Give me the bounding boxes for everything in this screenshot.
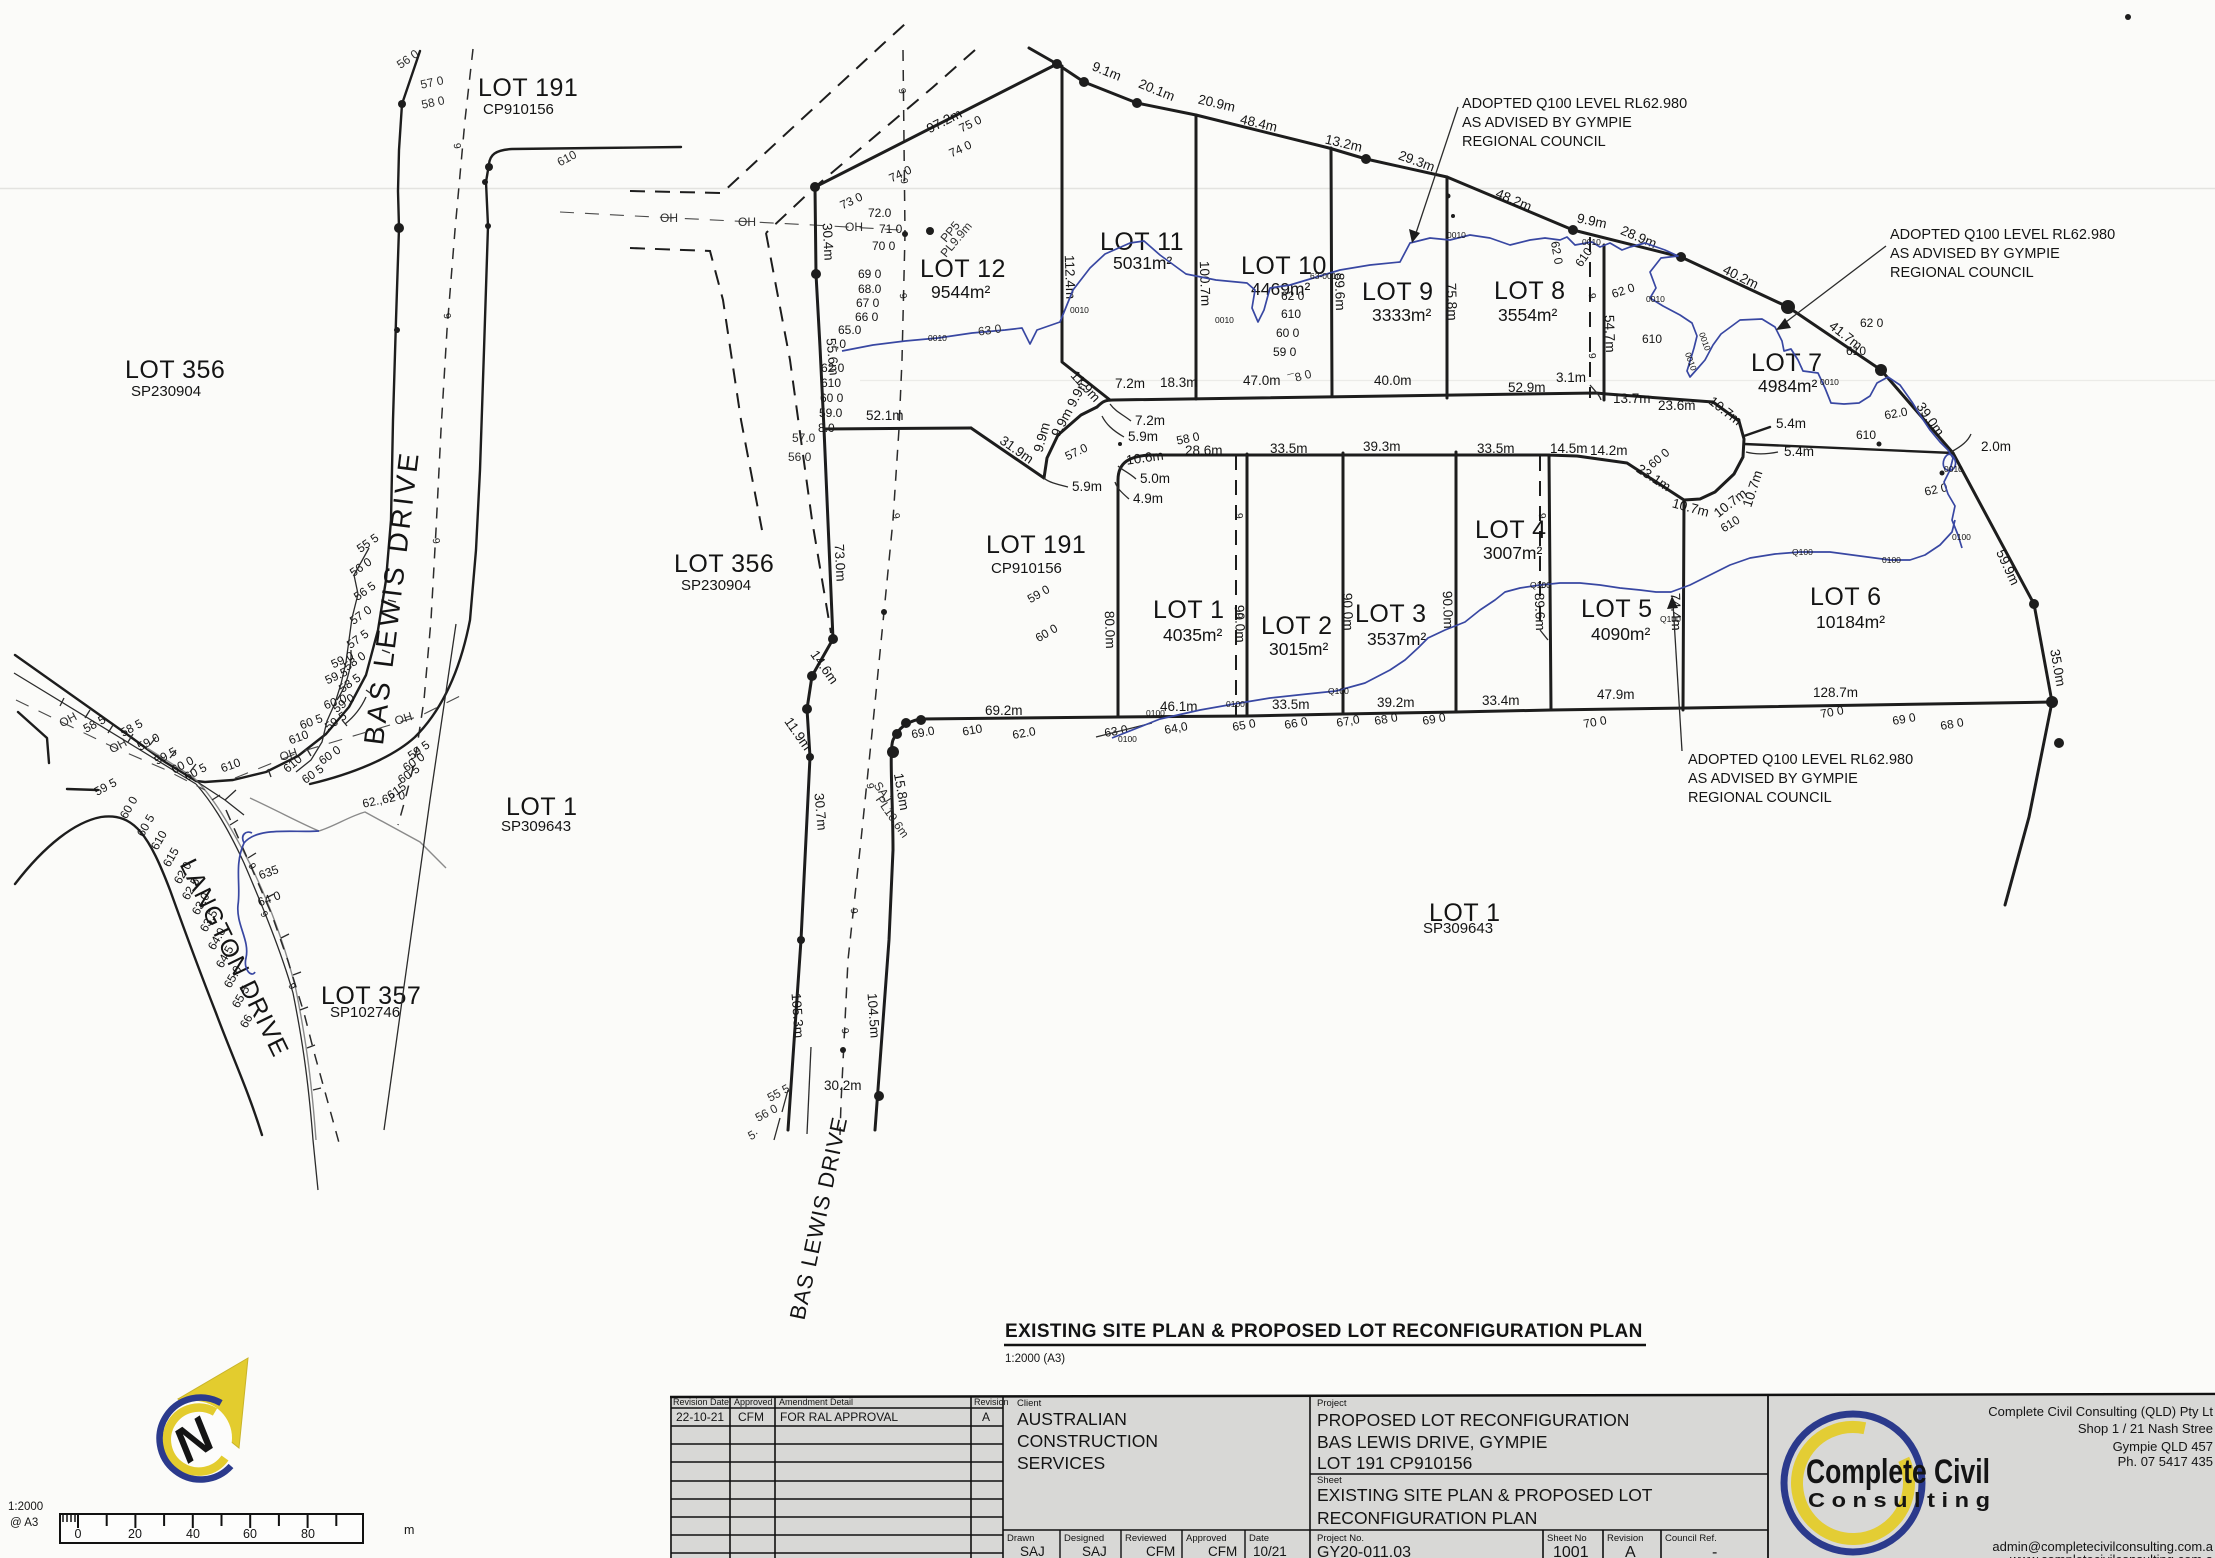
svg-text:52.1m: 52.1m <box>866 408 904 423</box>
svg-text:71 0: 71 0 <box>879 222 903 236</box>
svg-text:0010: 0010 <box>1447 230 1466 240</box>
svg-text:90 0m: 90 0m <box>1340 593 1356 631</box>
svg-text:CONSTRUCTION: CONSTRUCTION <box>1017 1431 1158 1451</box>
svg-text:20: 20 <box>128 1527 142 1541</box>
svg-text:10184m²: 10184m² <box>1816 612 1885 632</box>
svg-text:CP910156: CP910156 <box>483 101 554 118</box>
svg-text:m: m <box>404 1523 414 1537</box>
svg-text:SP309643: SP309643 <box>1423 920 1493 937</box>
svg-text:5031m²: 5031m² <box>1113 253 1173 273</box>
svg-text:Q100: Q100 <box>1792 547 1813 557</box>
svg-text:LOT 6: LOT 6 <box>1810 583 1882 611</box>
svg-text:33.5m: 33.5m <box>1272 697 1310 712</box>
svg-text:39.3m: 39.3m <box>1363 439 1401 454</box>
svg-text:Project No.: Project No. <box>1317 1533 1364 1544</box>
svg-text:22-10-21: 22-10-21 <box>676 1410 724 1424</box>
svg-text:Drawn: Drawn <box>1007 1533 1034 1544</box>
svg-text:AS ADVISED BY GYMPIE: AS ADVISED BY GYMPIE <box>1462 115 1632 131</box>
svg-text:70 0: 70 0 <box>872 239 896 253</box>
svg-text:-: - <box>1712 1544 1717 1558</box>
svg-text:67 0: 67 0 <box>856 296 880 310</box>
svg-text:89.6m: 89.6m <box>1532 593 1548 631</box>
svg-text:Revision Date: Revision Date <box>673 1397 729 1407</box>
svg-text:LOT 5: LOT 5 <box>1581 595 1653 623</box>
svg-text:62 0: 62 0 <box>1281 289 1305 303</box>
svg-text:28.6m: 28.6m <box>1185 443 1223 458</box>
svg-text:56 0: 56 0 <box>788 450 812 464</box>
svg-text:LOT 9: LOT 9 <box>1362 278 1434 306</box>
svg-text:Designed: Designed <box>1064 1533 1104 1544</box>
svg-text:60 0: 60 0 <box>1276 326 1300 340</box>
svg-text:4035m²: 4035m² <box>1163 625 1223 645</box>
svg-text:CP910156: CP910156 <box>991 560 1062 577</box>
svg-text:LOT 8: LOT 8 <box>1494 277 1566 305</box>
svg-text:104.5m: 104.5m <box>865 993 883 1039</box>
svg-text:610: 610 <box>1281 307 1301 321</box>
svg-text:80: 80 <box>301 1527 315 1541</box>
svg-text:0100: 0100 <box>1882 555 1901 565</box>
svg-text:EXISTING SITE PLAN & PROPOSED: EXISTING SITE PLAN & PROPOSED LOT RECONF… <box>1005 1321 1643 1342</box>
svg-text:3007m²: 3007m² <box>1483 543 1543 563</box>
svg-text:LOT 191 CP910156: LOT 191 CP910156 <box>1317 1453 1472 1473</box>
svg-text:3.1m: 3.1m <box>1556 370 1586 385</box>
svg-text:Revision: Revision <box>1607 1533 1643 1544</box>
svg-text:A: A <box>982 1410 990 1424</box>
svg-text:Council Ref.: Council Ref. <box>1665 1533 1717 1544</box>
svg-text:BAS LEWIS DRIVE, GYMPIE: BAS LEWIS DRIVE, GYMPIE <box>1317 1432 1547 1452</box>
svg-text:4984m²: 4984m² <box>1758 376 1818 396</box>
svg-text:128.7m: 128.7m <box>1813 685 1858 700</box>
svg-text:0100: 0100 <box>1952 532 1971 542</box>
svg-text:18.3m: 18.3m <box>1160 375 1198 390</box>
svg-text:40.0m: 40.0m <box>1374 373 1412 388</box>
svg-text:33.5m: 33.5m <box>1270 441 1308 456</box>
svg-text:610: 610 <box>821 376 841 390</box>
svg-text:14.2m: 14.2m <box>1590 443 1628 458</box>
svg-text:Gympie QLD 457: Gympie QLD 457 <box>2113 1439 2213 1454</box>
svg-text:0010: 0010 <box>1070 305 1089 315</box>
svg-text:SP102746: SP102746 <box>330 1004 400 1021</box>
svg-text:65.0: 65.0 <box>838 323 862 337</box>
svg-text:68.0: 68.0 <box>858 282 882 296</box>
svg-text:2.0m: 2.0m <box>1981 439 2011 454</box>
svg-text:EXISTING SITE PLAN & PROPOSED: EXISTING SITE PLAN & PROPOSED LOT <box>1317 1485 1653 1505</box>
svg-text:0010: 0010 <box>1582 237 1601 247</box>
svg-text:Q100: Q100 <box>1530 580 1551 590</box>
svg-text:Complete Civil: Complete Civil <box>1806 1453 1990 1491</box>
svg-text:Approved: Approved <box>1186 1533 1227 1544</box>
svg-text:52.9m: 52.9m <box>1508 380 1546 395</box>
svg-text:62 0: 62 0 <box>1860 316 1884 330</box>
svg-text:13.7m: 13.7m <box>1613 391 1651 406</box>
svg-text:CFM: CFM <box>738 1410 764 1424</box>
svg-text:CFM: CFM <box>1208 1544 1237 1558</box>
svg-text:30.2m: 30.2m <box>824 1078 862 1093</box>
svg-text:Client: Client <box>1017 1398 1042 1409</box>
svg-text:SP309643: SP309643 <box>501 818 571 835</box>
svg-text:73.0m: 73.0m <box>832 544 849 582</box>
svg-text:69 0: 69 0 <box>858 267 882 281</box>
svg-text:Complete Civil Consulting (QLD: Complete Civil Consulting (QLD) Pty Lt <box>1988 1404 2213 1419</box>
svg-text:LOT 2: LOT 2 <box>1261 612 1333 640</box>
svg-text:www.completecivilconsulting.co: www.completecivilconsulting.com.a <box>2009 1552 2214 1558</box>
svg-text:74.4m: 74.4m <box>1668 593 1684 631</box>
svg-text:REGIONAL COUNCIL: REGIONAL COUNCIL <box>1462 134 1606 150</box>
svg-text:RECONFIGURATION PLAN: RECONFIGURATION PLAN <box>1317 1508 1537 1528</box>
svg-text:75.8m: 75.8m <box>1444 283 1460 321</box>
svg-text:SERVICES: SERVICES <box>1017 1453 1105 1473</box>
svg-text:LOT 4: LOT 4 <box>1475 516 1547 544</box>
svg-text:SP230904: SP230904 <box>131 383 201 400</box>
svg-text:59 0: 59 0 <box>1273 345 1297 359</box>
svg-text:LOT 12: LOT 12 <box>920 255 1006 283</box>
svg-text:0100: 0100 <box>1118 734 1137 744</box>
svg-text:LOT 3: LOT 3 <box>1355 600 1427 628</box>
svg-text:63-0010: 63-0010 <box>1310 271 1341 281</box>
svg-text:SP230904: SP230904 <box>681 577 751 594</box>
svg-text:ADOPTED Q100 LEVEL RL62.980: ADOPTED Q100 LEVEL RL62.980 <box>1462 96 1687 112</box>
svg-text:33.5m: 33.5m <box>1477 441 1515 456</box>
svg-text:GY20-011.03: GY20-011.03 <box>1317 1544 1411 1558</box>
svg-text:REGIONAL COUNCIL: REGIONAL COUNCIL <box>1688 790 1832 806</box>
svg-text:90.0m: 90.0m <box>1440 591 1456 629</box>
svg-text:Ph. 07 5417 435: Ph. 07 5417 435 <box>2118 1454 2213 1469</box>
svg-text:ADOPTED Q100 LEVEL RL62.980: ADOPTED Q100 LEVEL RL62.980 <box>1688 752 1913 768</box>
svg-text:FOR RAL APPROVAL: FOR RAL APPROVAL <box>780 1410 898 1424</box>
svg-text:ADOPTED Q100 LEVEL RL62.980: ADOPTED Q100 LEVEL RL62.980 <box>1890 227 2115 243</box>
svg-text:57.0: 57.0 <box>792 431 816 445</box>
svg-text:100.7m: 100.7m <box>1197 261 1214 307</box>
svg-text:0: 0 <box>75 1527 82 1541</box>
svg-text:OH: OH <box>738 215 756 229</box>
svg-text:3015m²: 3015m² <box>1269 639 1329 659</box>
svg-text:LOT 1: LOT 1 <box>1153 596 1225 624</box>
svg-text:1001: 1001 <box>1553 1544 1589 1558</box>
svg-text:0010: 0010 <box>1820 377 1839 387</box>
svg-text:112.4m: 112.4m <box>1062 255 1079 300</box>
svg-text:0100: 0100 <box>1226 699 1245 709</box>
svg-text:1:2000 (A3): 1:2000 (A3) <box>1005 1353 1065 1365</box>
svg-text:LOT 191: LOT 191 <box>478 74 578 102</box>
svg-text:Date: Date <box>1249 1533 1269 1544</box>
svg-text:90.0m: 90.0m <box>1232 605 1248 643</box>
svg-text:7.2m: 7.2m <box>1135 413 1165 428</box>
svg-text:AS ADVISED BY GYMPIE: AS ADVISED BY GYMPIE <box>1890 246 2060 262</box>
svg-text:610: 610 <box>1846 344 1866 358</box>
svg-text:72.0: 72.0 <box>868 206 892 220</box>
svg-text:Project: Project <box>1317 1398 1347 1409</box>
svg-text:47.9m: 47.9m <box>1597 687 1635 702</box>
svg-text:7.2m: 7.2m <box>1115 376 1145 391</box>
svg-text:5.4m: 5.4m <box>1784 444 1814 459</box>
svg-text:OH: OH <box>845 220 863 234</box>
svg-text:Reviewed: Reviewed <box>1125 1533 1167 1544</box>
svg-text:0010: 0010 <box>1944 464 1963 474</box>
svg-text:OH: OH <box>660 211 678 225</box>
svg-text:AUSTRALIAN: AUSTRALIAN <box>1017 1409 1127 1429</box>
svg-text:SAJ: SAJ <box>1020 1544 1045 1558</box>
svg-text:105.3m: 105.3m <box>789 993 807 1039</box>
svg-text:5.0m: 5.0m <box>1140 471 1170 486</box>
svg-text:C o n s u l t i n g: C o n s u l t i n g <box>1808 1490 1990 1512</box>
svg-text:39.2m: 39.2m <box>1377 695 1415 710</box>
svg-text:9544m²: 9544m² <box>931 282 991 302</box>
svg-text:0010: 0010 <box>1215 315 1234 325</box>
svg-text:0010: 0010 <box>1646 294 1665 304</box>
svg-text:0010: 0010 <box>928 333 947 343</box>
svg-text:5.9m: 5.9m <box>1128 429 1158 444</box>
svg-text:5.9m: 5.9m <box>1072 479 1102 494</box>
svg-text:30.4m: 30.4m <box>820 223 837 261</box>
svg-text:REGIONAL COUNCIL: REGIONAL COUNCIL <box>1890 265 2034 281</box>
svg-text:23.6m: 23.6m <box>1658 398 1696 413</box>
svg-text:33.4m: 33.4m <box>1482 693 1520 708</box>
svg-text:Shop 1 / 21 Nash Stree: Shop 1 / 21 Nash Stree <box>2078 1421 2213 1436</box>
svg-text:Approved: Approved <box>734 1397 773 1407</box>
svg-text:PROPOSED LOT RECONFIGURATION: PROPOSED LOT RECONFIGURATION <box>1317 1410 1629 1430</box>
svg-text:LOT 191: LOT 191 <box>986 531 1086 559</box>
svg-text:5.4m: 5.4m <box>1776 416 1806 431</box>
svg-text:40: 40 <box>186 1527 200 1541</box>
svg-text:69.2m: 69.2m <box>985 703 1023 718</box>
svg-text:SAJ: SAJ <box>1082 1544 1107 1558</box>
svg-text:Q100: Q100 <box>1660 614 1681 624</box>
svg-text:0100: 0100 <box>1146 708 1165 718</box>
svg-text:Amendment Detail: Amendment Detail <box>779 1397 853 1407</box>
svg-text:47.0m: 47.0m <box>1243 373 1281 388</box>
svg-text:3333m²: 3333m² <box>1372 305 1432 325</box>
svg-text:Revision: Revision <box>974 1397 1009 1407</box>
svg-text:60: 60 <box>243 1527 257 1541</box>
svg-text:610: 610 <box>1856 428 1876 442</box>
svg-text:66 0: 66 0 <box>855 310 879 324</box>
svg-text:610: 610 <box>1642 332 1662 346</box>
svg-text:@ A3: @ A3 <box>10 1517 38 1529</box>
svg-text:3554m²: 3554m² <box>1498 305 1558 325</box>
svg-text:AS ADVISED BY GYMPIE: AS ADVISED BY GYMPIE <box>1688 771 1858 787</box>
svg-text:80.0m: 80.0m <box>1102 611 1118 649</box>
svg-text:4090m²: 4090m² <box>1591 624 1651 644</box>
svg-text:10/21: 10/21 <box>1253 1544 1287 1558</box>
svg-text:3537m²: 3537m² <box>1367 629 1427 649</box>
svg-text:A: A <box>1625 1544 1636 1558</box>
svg-text:Sheet No: Sheet No <box>1547 1533 1587 1544</box>
svg-text:4.9m: 4.9m <box>1133 491 1163 506</box>
svg-text:1:2000: 1:2000 <box>8 1501 43 1513</box>
svg-text:LOT 1: LOT 1 <box>506 793 578 821</box>
svg-text:Q100: Q100 <box>1328 686 1349 696</box>
svg-text:14.5m: 14.5m <box>1550 441 1588 456</box>
svg-text:54.7m: 54.7m <box>1602 315 1618 353</box>
svg-text:CFM: CFM <box>1146 1544 1175 1558</box>
svg-text:LOT 356: LOT 356 <box>125 356 225 384</box>
svg-text:LOT 356: LOT 356 <box>674 550 774 578</box>
